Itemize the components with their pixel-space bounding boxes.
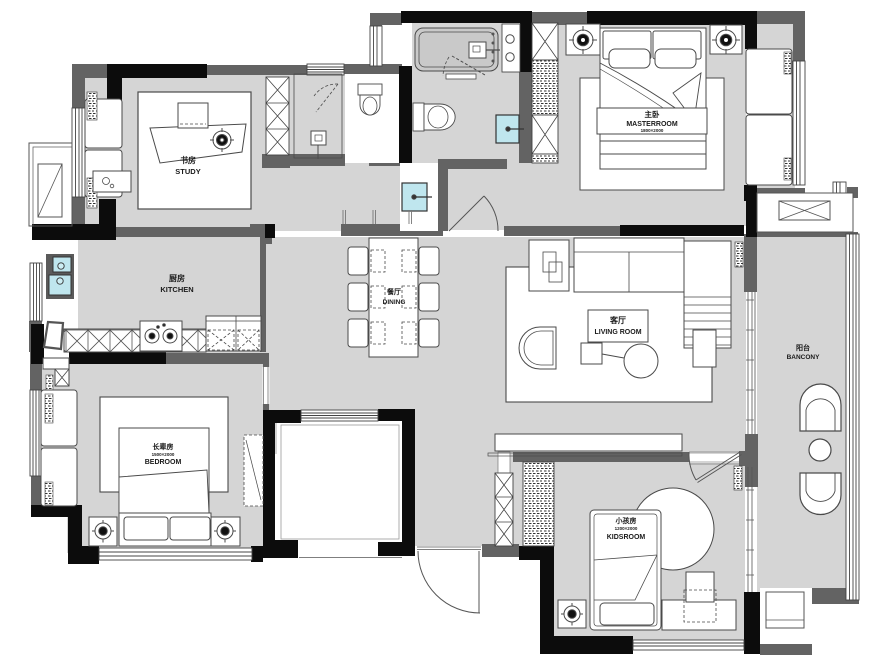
svg-text:阳台: 阳台 — [796, 343, 810, 352]
svg-text:BEDROOM: BEDROOM — [145, 459, 182, 466]
svg-text:1800×2000: 1800×2000 — [641, 128, 664, 133]
svg-text:KIDSROOM: KIDSROOM — [607, 534, 646, 541]
svg-text:KITCHEN: KITCHEN — [160, 285, 193, 294]
svg-text:MASTERROOM: MASTERROOM — [626, 121, 678, 128]
svg-text:餐厅: 餐厅 — [386, 287, 401, 296]
svg-text:DINING: DINING — [383, 299, 406, 306]
svg-text:LIVING ROOM: LIVING ROOM — [594, 329, 641, 336]
svg-text:主卧: 主卧 — [645, 109, 660, 119]
svg-text:书房: 书房 — [180, 155, 196, 165]
svg-text:厨房: 厨房 — [169, 273, 185, 283]
svg-text:小孩房: 小孩房 — [615, 516, 637, 525]
svg-text:BANCONY: BANCONY — [787, 354, 821, 361]
svg-text:STUDY: STUDY — [175, 167, 200, 176]
svg-text:长辈房: 长辈房 — [153, 442, 174, 451]
svg-text:1200×2000: 1200×2000 — [615, 526, 638, 531]
svg-text:1500×2000: 1500×2000 — [152, 452, 175, 457]
svg-text:客厅: 客厅 — [609, 315, 626, 325]
